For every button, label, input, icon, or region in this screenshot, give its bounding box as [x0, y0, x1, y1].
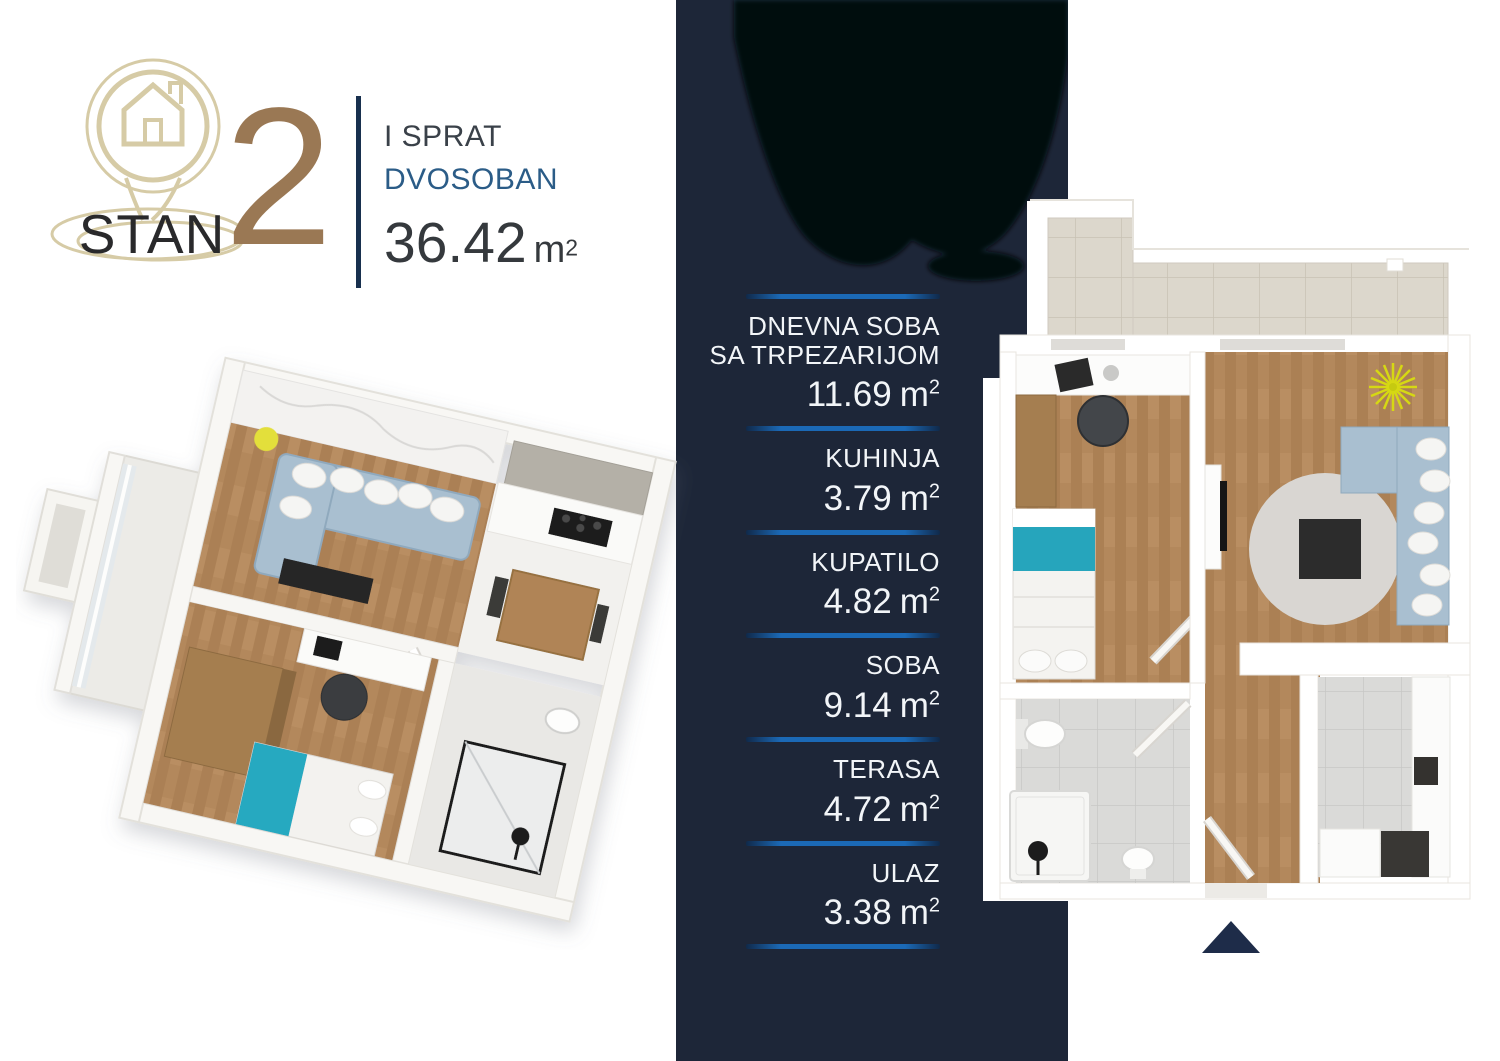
bedroom — [1013, 355, 1201, 683]
room-area-unit: m — [900, 479, 929, 518]
room-area-exponent: 2 — [929, 687, 940, 709]
bathroom — [1000, 683, 1190, 883]
apartment-summary: I SPRAT DVOSOBAN 36.42m2 — [384, 120, 578, 276]
room-area-value: 3.79 — [824, 479, 892, 518]
room-area-value: 11.69 — [807, 375, 892, 414]
entrance-direction-triangle — [1202, 921, 1260, 953]
divider-line — [746, 633, 940, 638]
divider-line — [746, 737, 940, 742]
room-area-value: 4.82 — [824, 582, 892, 621]
total-area: 36.42m2 — [384, 210, 578, 276]
divider-line — [746, 426, 940, 431]
divider-line — [746, 841, 940, 846]
bedroom-hall-wall — [1190, 352, 1205, 683]
room-area-value: 3.38 — [824, 893, 892, 932]
layout-label: DVOSOBAN — [384, 163, 578, 197]
room-area-value: 9.14 — [824, 686, 892, 725]
room-area-unit: m — [900, 582, 929, 621]
room-area-exponent: 2 — [929, 480, 940, 502]
plant — [1369, 363, 1417, 411]
floorplan-3d-render — [16, 330, 748, 950]
divider-line — [746, 294, 940, 299]
coffee-table — [1299, 519, 1361, 579]
room-area-exponent: 2 — [929, 791, 940, 813]
total-area-value: 36.42 — [384, 211, 527, 275]
tv — [1220, 481, 1227, 551]
floorplan-2d-topview — [983, 197, 1497, 901]
office-chair — [1078, 396, 1128, 446]
room-area-exponent: 2 — [929, 377, 940, 399]
divider-line — [746, 530, 940, 535]
header-divider — [356, 96, 361, 288]
room-area-value: 4.72 — [824, 790, 892, 829]
shower — [1010, 791, 1090, 881]
room-area-unit: m — [900, 375, 929, 414]
cooktop — [1381, 831, 1429, 877]
wardrobe — [1016, 395, 1056, 507]
toilet — [1016, 719, 1065, 749]
room-area-exponent: 2 — [929, 895, 940, 917]
bed — [1013, 509, 1095, 679]
kitchen-wall — [1240, 643, 1470, 675]
room-area-unit: m — [900, 893, 929, 932]
kitchen — [1300, 675, 1450, 883]
kitchen-cabinet — [1320, 829, 1380, 877]
room-area-unit: m — [900, 686, 929, 725]
apartment-number: 2 — [224, 84, 333, 270]
floor-label: I SPRAT — [384, 120, 578, 154]
tv-console — [1205, 465, 1221, 569]
divider-line — [746, 944, 940, 949]
right-outer-wall — [1448, 335, 1470, 883]
oven — [1414, 757, 1438, 785]
room-area-exponent: 2 — [929, 584, 940, 606]
total-area-exponent: 2 — [565, 235, 578, 261]
room-area-unit: m — [900, 790, 929, 829]
brand-name: STAN — [52, 202, 252, 266]
total-area-unit: m — [534, 229, 566, 271]
desk-lamp — [1103, 365, 1119, 381]
